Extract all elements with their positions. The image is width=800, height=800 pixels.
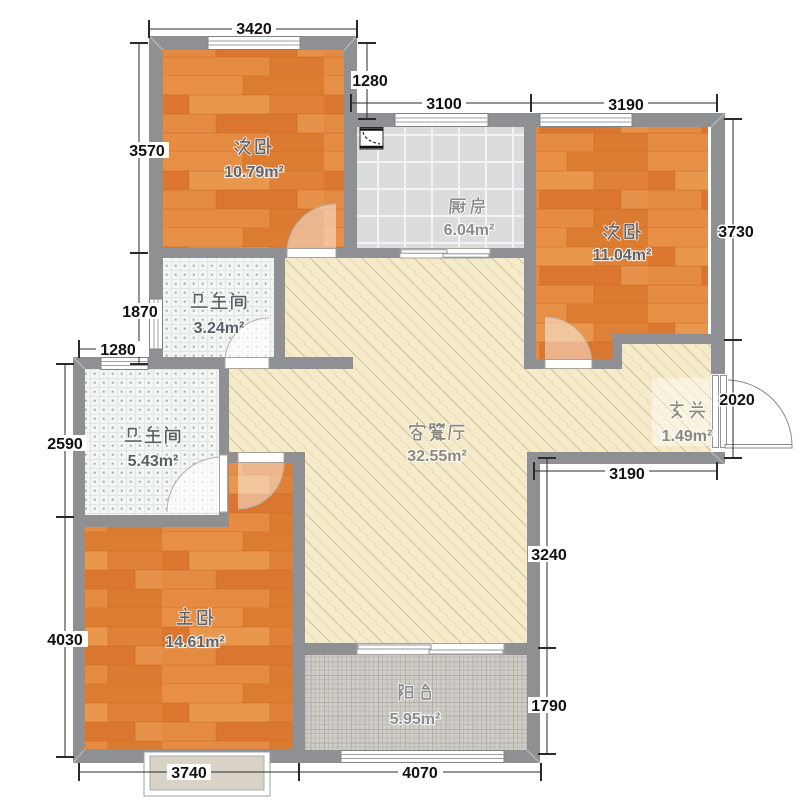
svg-text:3240: 3240 xyxy=(531,547,567,564)
svg-text:6.04m²: 6.04m² xyxy=(444,222,495,239)
svg-text:3730: 3730 xyxy=(718,224,754,241)
svg-text:3570: 3570 xyxy=(129,143,165,160)
svg-text:5.95m²: 5.95m² xyxy=(390,711,441,728)
svg-text:3100: 3100 xyxy=(426,96,462,113)
svg-text:2020: 2020 xyxy=(719,392,755,409)
svg-text:32.55m²: 32.55m² xyxy=(407,448,467,465)
svg-text:4030: 4030 xyxy=(47,632,83,649)
svg-text:1280: 1280 xyxy=(100,342,136,359)
svg-text:4070: 4070 xyxy=(402,765,438,782)
svg-text:11.04m²: 11.04m² xyxy=(593,247,652,264)
svg-text:1790: 1790 xyxy=(531,698,567,715)
svg-text:10.79m²: 10.79m² xyxy=(224,164,284,181)
svg-text:2590: 2590 xyxy=(47,436,83,453)
svg-text:3.24m²: 3.24m² xyxy=(194,320,245,337)
svg-text:3420: 3420 xyxy=(236,21,272,38)
svg-text:1870: 1870 xyxy=(122,304,158,321)
svg-text:3190: 3190 xyxy=(609,466,645,483)
svg-text:14.61m²: 14.61m² xyxy=(165,634,225,651)
svg-text:3190: 3190 xyxy=(608,97,644,114)
svg-text:1280: 1280 xyxy=(352,73,388,90)
svg-text:3740: 3740 xyxy=(171,765,207,782)
svg-text:5.43m²: 5.43m² xyxy=(128,453,179,470)
svg-text:1.49m²: 1.49m² xyxy=(662,428,713,445)
